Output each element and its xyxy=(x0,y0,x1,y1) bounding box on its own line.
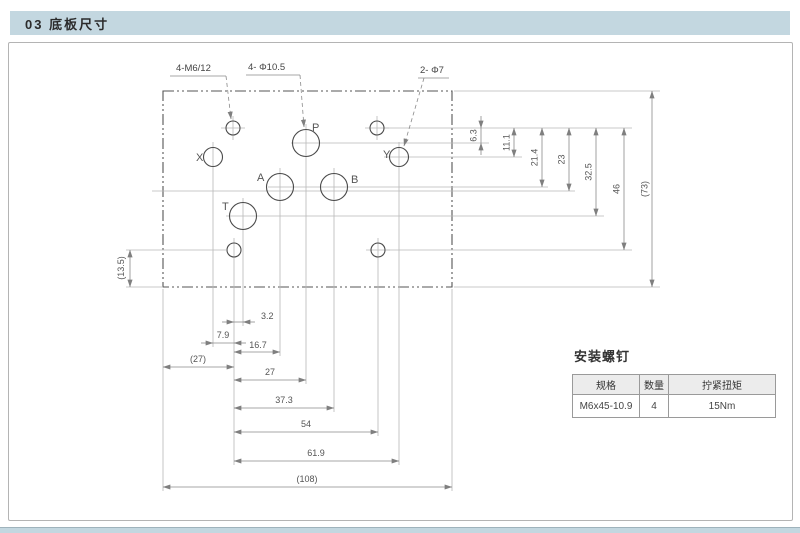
section-header: 03 底板尺寸 xyxy=(10,11,790,35)
cell-qty: 4 xyxy=(640,395,669,418)
col-qty: 数量 xyxy=(640,375,669,395)
cell-torque: 15Nm xyxy=(669,395,776,418)
col-torque: 拧紧扭矩 xyxy=(669,375,776,395)
screw-table-header-row: 规格 数量 拧紧扭矩 xyxy=(573,375,776,395)
screw-table: 规格 数量 拧紧扭矩 M6x45-10.9 4 15Nm xyxy=(572,374,776,418)
col-spec: 规格 xyxy=(573,375,640,395)
cell-spec: M6x45-10.9 xyxy=(573,395,640,418)
bottom-band xyxy=(0,527,800,533)
section-title: 03 底板尺寸 xyxy=(25,14,109,33)
mounting-screw-block: 安装螺钉 规格 数量 拧紧扭矩 M6x45-10.9 4 15Nm xyxy=(572,346,774,418)
screw-table-title: 安装螺钉 xyxy=(574,346,774,365)
content-frame xyxy=(8,42,793,521)
screw-table-data-row: M6x45-10.9 4 15Nm xyxy=(573,395,776,418)
